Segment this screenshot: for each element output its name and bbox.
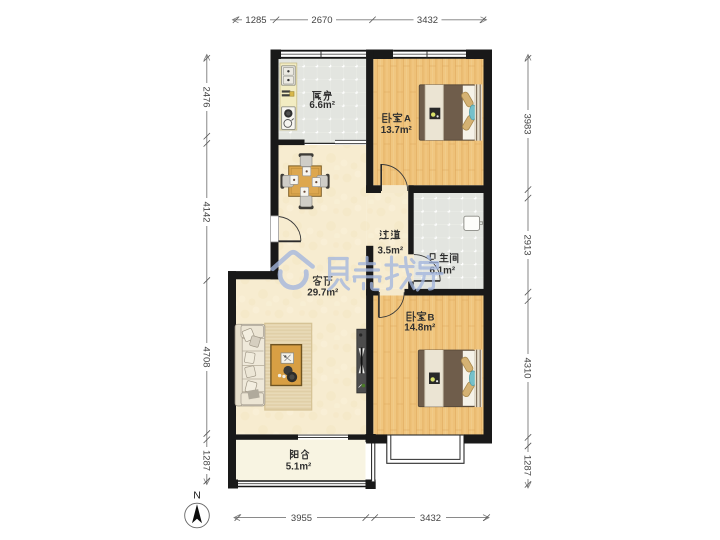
svg-text:3432: 3432 xyxy=(417,15,438,26)
svg-text:2476: 2476 xyxy=(201,86,212,107)
svg-text:5.1m²: 5.1m² xyxy=(286,461,312,472)
svg-text:13.7m²: 13.7m² xyxy=(381,125,413,136)
svg-text:4708: 4708 xyxy=(201,346,212,367)
svg-text:4310: 4310 xyxy=(522,357,533,378)
svg-text:2670: 2670 xyxy=(311,15,332,26)
svg-text:6.6m²: 6.6m² xyxy=(309,100,335,111)
svg-text:A: A xyxy=(404,114,411,125)
svg-text:1287: 1287 xyxy=(201,450,212,471)
svg-text:3432: 3432 xyxy=(420,513,441,524)
svg-text:1287: 1287 xyxy=(522,455,533,476)
svg-text:3983: 3983 xyxy=(522,113,533,134)
svg-text:N: N xyxy=(193,490,201,502)
svg-text:29.7m²: 29.7m² xyxy=(307,288,339,299)
svg-text:2913: 2913 xyxy=(522,234,533,255)
svg-text:14.8m²: 14.8m² xyxy=(404,323,436,334)
svg-text:B: B xyxy=(428,312,435,323)
svg-text:3.5m²: 3.5m² xyxy=(378,245,404,256)
svg-text:4142: 4142 xyxy=(201,201,212,222)
svg-text:1285: 1285 xyxy=(245,15,266,26)
svg-text:3955: 3955 xyxy=(291,513,312,524)
